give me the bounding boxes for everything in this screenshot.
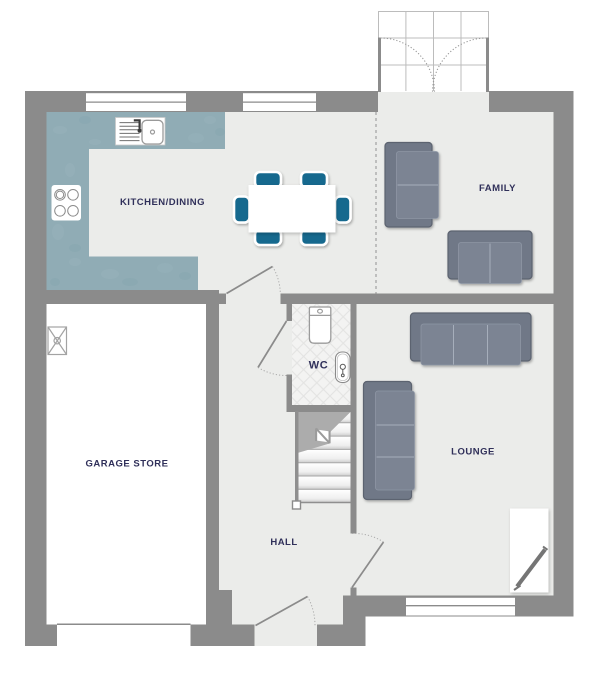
svg-text:GARAGE STORE: GARAGE STORE xyxy=(86,459,169,470)
svg-text:WC: WC xyxy=(309,360,329,372)
svg-text:FAMILY: FAMILY xyxy=(479,183,516,194)
svg-text:LOUNGE: LOUNGE xyxy=(451,447,495,458)
svg-text:KITCHEN/DINING: KITCHEN/DINING xyxy=(120,197,205,208)
svg-text:HALL: HALL xyxy=(270,537,297,548)
